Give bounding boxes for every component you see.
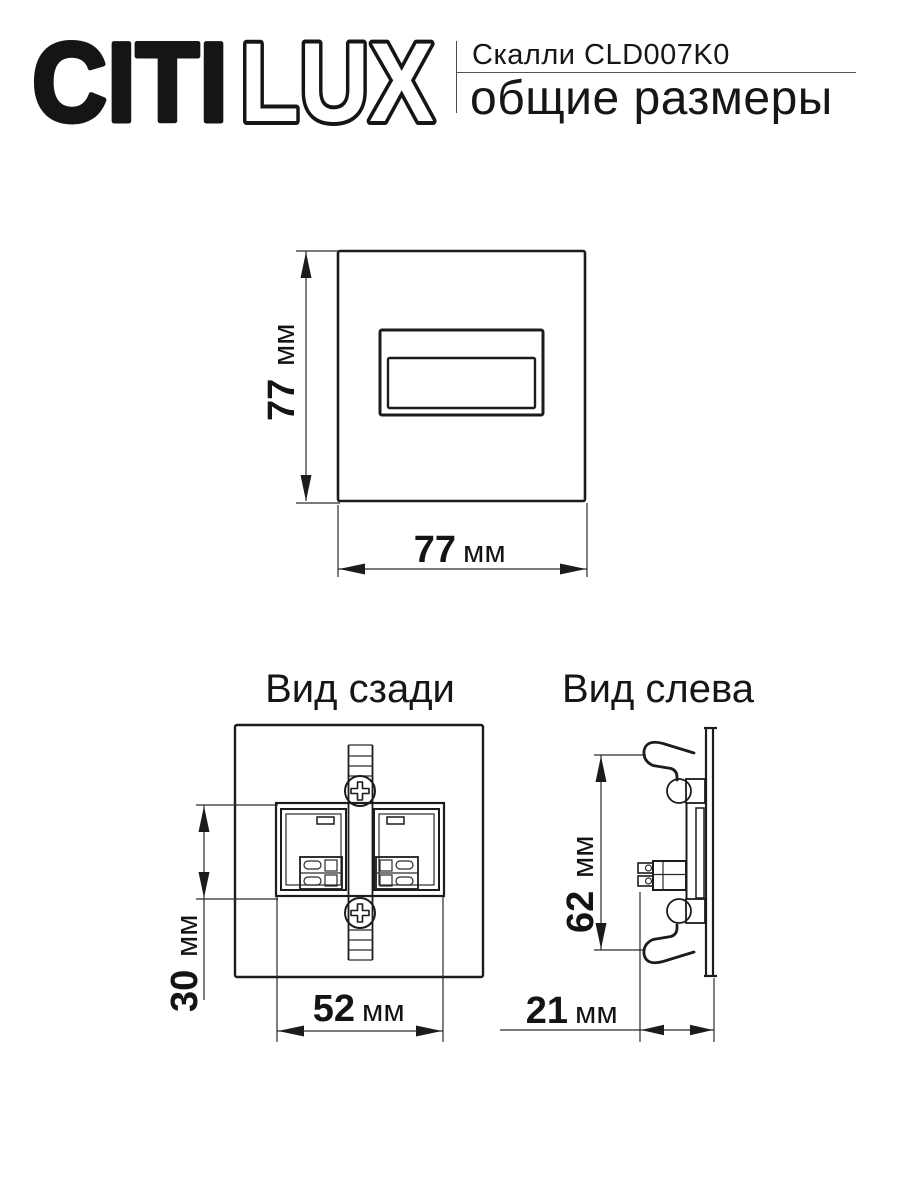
left-compartment bbox=[281, 809, 346, 890]
front-height-value: 77 bbox=[261, 379, 303, 421]
dim-left-height: 62 мм bbox=[560, 755, 646, 950]
front-height-unit: мм bbox=[266, 323, 301, 366]
arrow-down-icon bbox=[301, 475, 312, 501]
rear-height-unit: мм bbox=[169, 914, 204, 957]
rear-view bbox=[235, 725, 483, 977]
arrow-right-icon bbox=[690, 1025, 713, 1035]
dim-front-width: 77 мм bbox=[338, 503, 587, 577]
arrow-up-icon bbox=[301, 252, 312, 278]
arrow-left-icon bbox=[278, 1026, 304, 1037]
dim-rear-inner-height: 30 мм bbox=[164, 805, 278, 1012]
rear-view-title: Вид сзади bbox=[265, 667, 455, 711]
rear-backplate bbox=[235, 725, 483, 977]
top-spring-clip bbox=[644, 742, 694, 780]
left-terminal-block bbox=[300, 857, 342, 889]
bottom-clip-body bbox=[686, 899, 705, 923]
dim-front-height: 77 мм bbox=[261, 251, 340, 503]
rear-height-value: 30 bbox=[164, 970, 206, 1012]
left-view-title: Вид слева bbox=[562, 667, 755, 711]
bottom-spring-coil bbox=[667, 899, 691, 923]
phillips-screw-icon bbox=[345, 776, 375, 806]
front-window-outer bbox=[380, 330, 543, 415]
bottom-spring-clip bbox=[644, 925, 694, 963]
left-height-value: 62 bbox=[560, 891, 602, 933]
arrow-left-icon bbox=[339, 564, 365, 575]
faceplate-edge bbox=[704, 728, 717, 976]
left-slot bbox=[317, 817, 334, 824]
left-height-unit: мм bbox=[565, 835, 600, 878]
side-terminal-block bbox=[638, 861, 686, 890]
arrow-left-icon bbox=[641, 1025, 664, 1035]
left-depth-unit: мм bbox=[575, 995, 618, 1030]
front-view bbox=[338, 251, 585, 501]
arrow-up-icon bbox=[199, 806, 210, 832]
front-width-unit: мм bbox=[463, 534, 506, 569]
drawing-page: CITI LUX Скалли CLD007K0 общие размеры 7… bbox=[0, 0, 899, 1200]
arrow-right-icon bbox=[416, 1026, 442, 1037]
front-window-inner bbox=[388, 358, 535, 408]
left-view bbox=[638, 728, 717, 976]
right-terminal-block bbox=[376, 857, 418, 889]
dim-left-depth: 21 мм bbox=[500, 892, 714, 1042]
arrow-up-icon bbox=[596, 756, 607, 782]
dim-rear-inner-width: 52 мм bbox=[277, 897, 443, 1042]
arrow-down-icon bbox=[199, 872, 210, 898]
front-width-value: 77 bbox=[414, 529, 456, 571]
top-spring-coil bbox=[667, 779, 691, 803]
right-compartment bbox=[374, 809, 439, 890]
body-column bbox=[696, 808, 704, 898]
front-faceplate bbox=[338, 251, 585, 501]
left-depth-value: 21 bbox=[526, 990, 568, 1032]
phillips-screw-icon bbox=[345, 898, 375, 928]
top-clip-body bbox=[686, 779, 705, 803]
rear-width-value: 52 bbox=[313, 988, 355, 1030]
technical-drawing: 77 мм 77 мм Вид сзади bbox=[0, 0, 899, 1200]
arrow-right-icon bbox=[560, 564, 586, 575]
right-slot bbox=[387, 817, 404, 824]
rear-width-unit: мм bbox=[362, 993, 405, 1028]
